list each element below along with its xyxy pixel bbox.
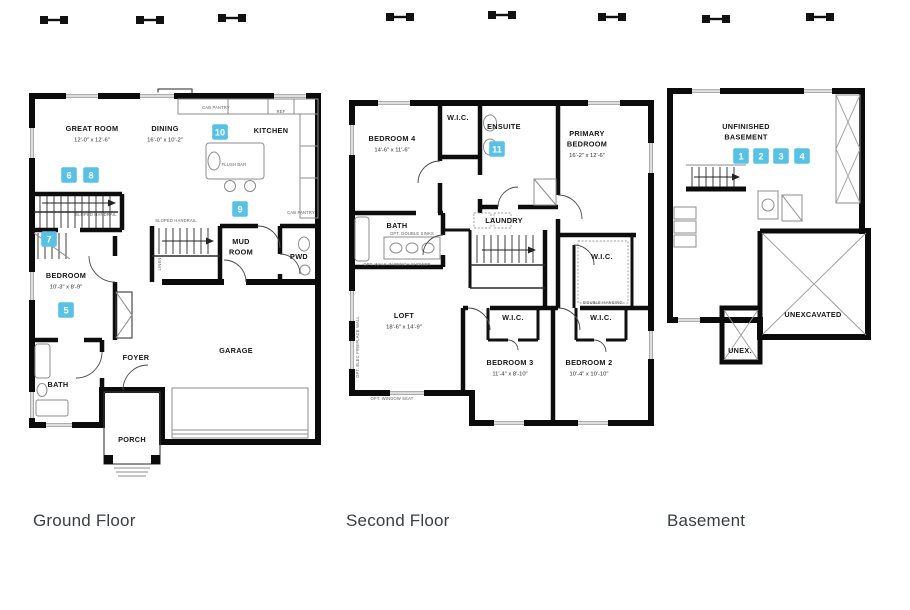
room-label: PWD [290,252,308,261]
hotspot-marker-10[interactable]: 10 [212,124,228,140]
structure-above-mark [598,13,626,21]
hotspot-marker-4[interactable]: 4 [794,148,810,164]
plan-annotation: OPT. WALK-IN BENCH SHOWER [363,262,430,267]
svg-text:6: 6 [66,170,71,180]
svg-text:2: 2 [758,151,763,161]
ground-labels: GREAT ROOM12'-0" x 12'-6"DINING16'-0" x … [41,105,315,444]
room-label: BATH [48,380,69,389]
room-label: PRIMARY [569,129,604,138]
room-label: UNEX. [728,346,752,355]
basement-stairs [686,165,746,189]
hotspot-marker-1[interactable]: 1 [733,148,749,164]
hotspot-marker-5[interactable]: 5 [58,302,74,318]
second-stairs [470,235,545,288]
room-label: BATH [387,221,408,230]
hotspot-marker-11[interactable]: 11 [489,141,505,157]
room-label: ENSUITE [487,122,521,131]
room-label: BEDROOM 3 [487,358,534,367]
svg-text:3: 3 [778,151,783,161]
room-label: ROOM [229,248,253,257]
svg-text:4: 4 [799,151,805,161]
svg-text:8: 8 [88,170,93,180]
plan-annotation: OPT. DOUBLE SINKS [390,231,434,236]
room-label: GARAGE [219,346,253,355]
room-label: KITCHEN [254,126,289,135]
room-label: BEDROOM [567,140,607,149]
basement-fixtures [674,191,802,247]
structure-above-mark [40,16,68,24]
plan-annotation: FLUSH BAR [222,162,247,167]
floor-caption-ground: Ground Floor [33,511,136,531]
room-label: BEDROOM 4 [369,134,417,143]
svg-text:7: 7 [46,234,51,244]
ground-porch [104,392,160,476]
hotspot-marker-7[interactable]: 7 [41,231,57,247]
second-labels: BEDROOM 414'-6" x 11'-6"W.I.C.ENSUITEPRI… [355,113,623,401]
room-label: W.I.C. [502,313,524,322]
room-dimensions: 10'-4" x 10'-10" [570,372,609,378]
floor-caption-second: Second Floor [346,511,450,531]
room-dimensions: 10'-3" x 8'-9" [50,285,82,291]
structure-above-mark [806,13,834,21]
hotspot-marker-2[interactable]: 2 [753,148,769,164]
room-label: LOFT [394,311,414,320]
hotspot-marker-6[interactable]: 6 [61,167,77,183]
svg-text:10: 10 [215,127,225,137]
room-label: DINING [151,124,178,133]
room-dimensions: 18'-6" x 14'-9" [386,325,422,331]
room-label: BEDROOM [46,271,86,280]
plan-annotation: CAB PANTRY [287,210,315,215]
room-label: BEDROOM 2 [566,358,613,367]
room-label: GREAT ROOM [66,124,119,133]
room-label: UNFINISHED [722,122,770,131]
structure-above-mark [136,16,164,24]
plan-annotation: OPT. WINDOW SEAT [371,396,414,401]
svg-text:11: 11 [492,144,502,154]
room-dimensions: 16'-0" x 10'-2" [147,138,183,144]
room-label: W.I.C. [590,313,612,322]
structure-above-mark [386,13,414,21]
room-label: FOYER [123,353,150,362]
basement-plan: UNFINISHEDBASEMENTUNEXCAVATEDUNEX.1234 [666,83,896,413]
structure-above-mark [488,11,516,19]
room-label: W.I.C. [447,113,469,122]
floorplan-page: GREAT ROOM12'-0" x 12'-6"DINING16'-0" x … [0,0,910,610]
room-dimensions: 14'-6" x 11'-6" [374,148,409,154]
ground-stairs [34,196,220,259]
room-dimensions: 11'-4" x 8'-10" [492,372,527,378]
room-label: MUD [232,237,250,246]
svg-text:5: 5 [63,305,68,315]
room-label: PORCH [118,435,146,444]
plan-annotation: DOUBLE HANGING [583,300,623,305]
hotspot-marker-3[interactable]: 3 [773,148,789,164]
svg-text:1: 1 [738,151,743,161]
plan-annotation: REF [277,109,286,114]
plan-annotation: LINEN [157,257,162,270]
second-floor-plan: BEDROOM 414'-6" x 11'-6"W.I.C.ENSUITEPRI… [348,95,658,440]
svg-text:9: 9 [237,204,242,214]
plan-annotation: CAB PANTRY [202,105,230,110]
room-label: W.I.C. [591,252,613,261]
hotspot-marker-8[interactable]: 8 [83,167,99,183]
hotspot-marker-9[interactable]: 9 [232,201,248,217]
room-label: UNEXCAVATED [784,310,841,319]
plan-annotation: SLOPED HANDRAIL [155,218,197,223]
room-label: BASEMENT [724,133,768,142]
room-label: LAUNDRY [485,216,523,225]
ground-fixtures [35,99,318,438]
plan-annotation: SLOPED HANDRAIL [75,212,117,217]
structure-above-mark [218,14,246,22]
ground-floor-plan: GREAT ROOM12'-0" x 12'-6"DINING16'-0" x … [28,86,328,498]
plan-annotation: OPT. ELEC FIREPLACE WALL [355,316,360,378]
room-dimensions: 12'-0" x 12'-6" [74,138,110,144]
room-dimensions: 16'-2" x 12'-6" [569,153,605,159]
structure-above-mark [702,15,730,23]
floor-caption-basement: Basement [667,511,745,531]
